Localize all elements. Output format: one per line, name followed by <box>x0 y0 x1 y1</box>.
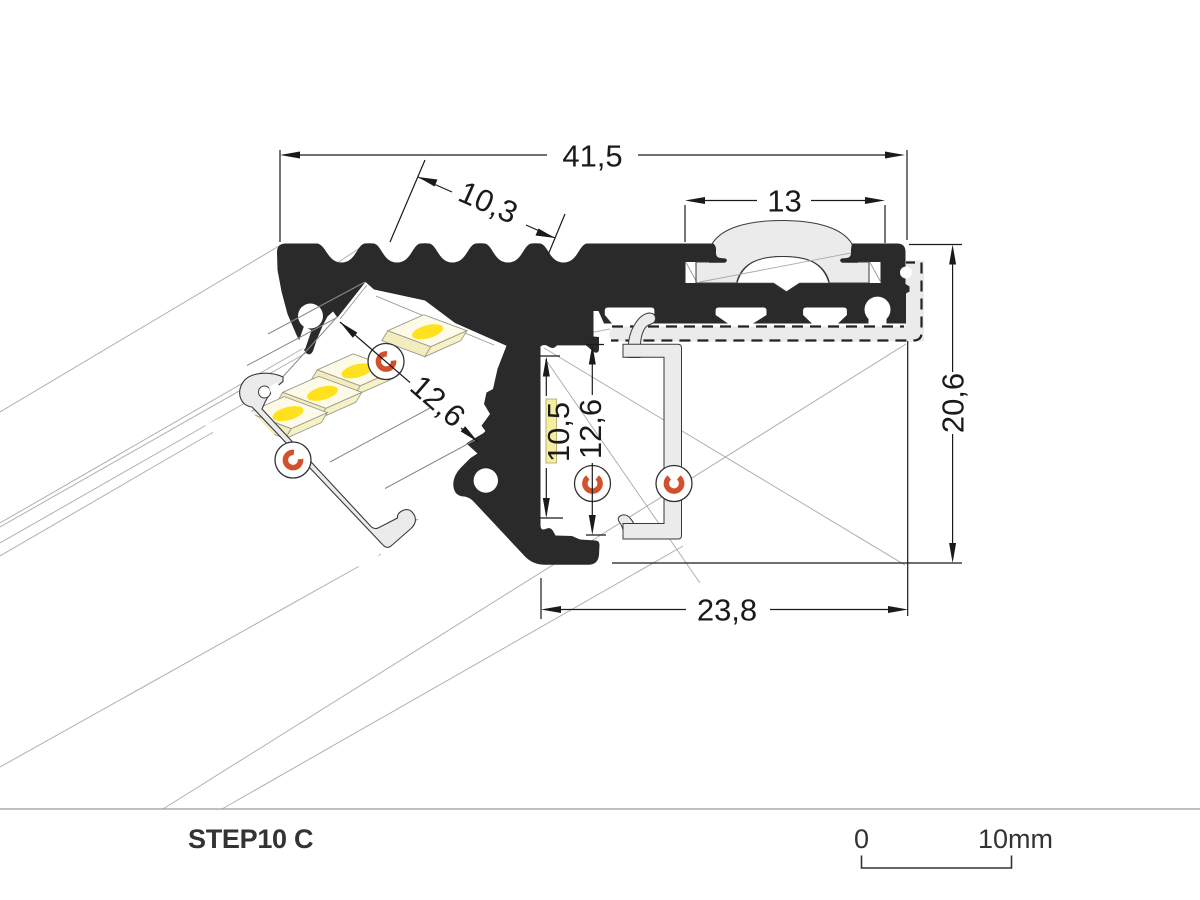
svg-text:10mm: 10mm <box>978 824 1053 854</box>
svg-text:10,5: 10,5 <box>541 402 576 462</box>
svg-text:13: 13 <box>767 184 801 219</box>
svg-text:41,5: 41,5 <box>562 139 622 174</box>
svg-text:12,6: 12,6 <box>573 399 608 459</box>
svg-text:0: 0 <box>854 824 869 854</box>
svg-text:23,8: 23,8 <box>697 593 757 628</box>
svg-text:20,6: 20,6 <box>936 373 971 433</box>
svg-text:STEP10 C: STEP10 C <box>188 824 313 854</box>
